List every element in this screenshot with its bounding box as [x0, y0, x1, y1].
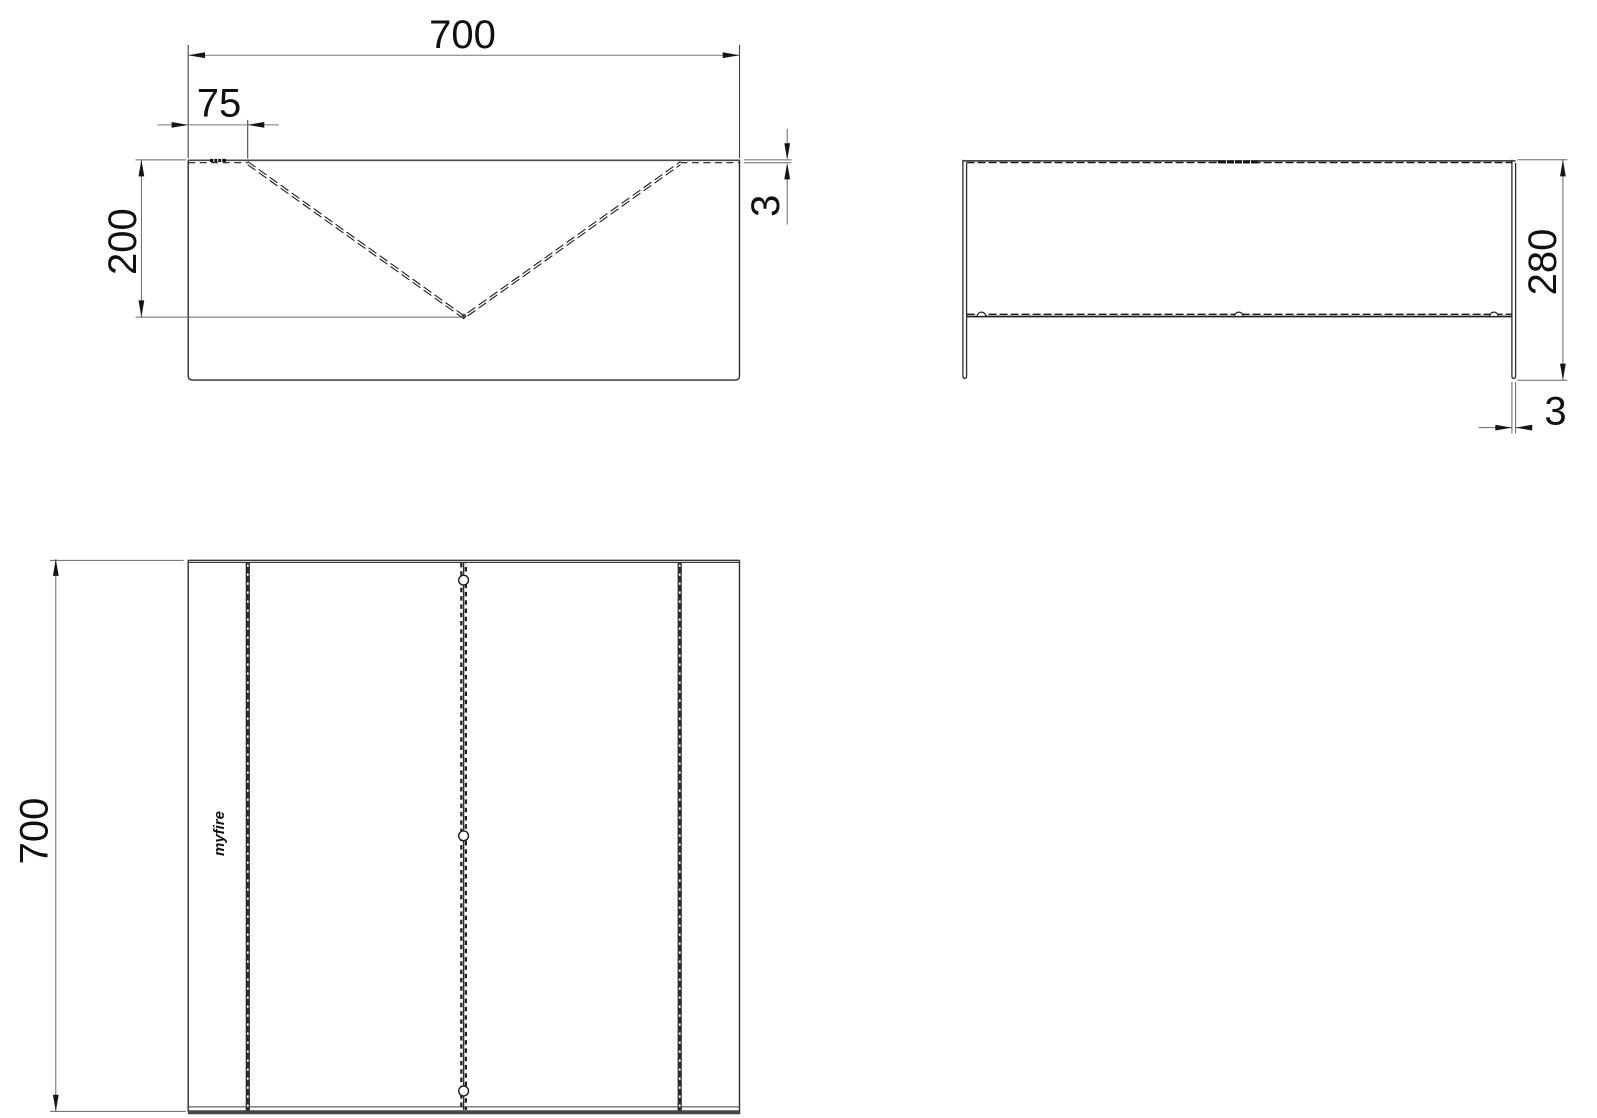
svg-text:280: 280 [1521, 229, 1565, 296]
svg-text:3: 3 [744, 195, 788, 217]
svg-text:700: 700 [12, 798, 56, 865]
svg-text:700: 700 [429, 13, 496, 57]
svg-text:75: 75 [197, 82, 242, 126]
svg-text:3: 3 [1544, 390, 1566, 434]
svg-text:200: 200 [101, 208, 145, 275]
svg-text:myfire: myfire [211, 811, 228, 856]
